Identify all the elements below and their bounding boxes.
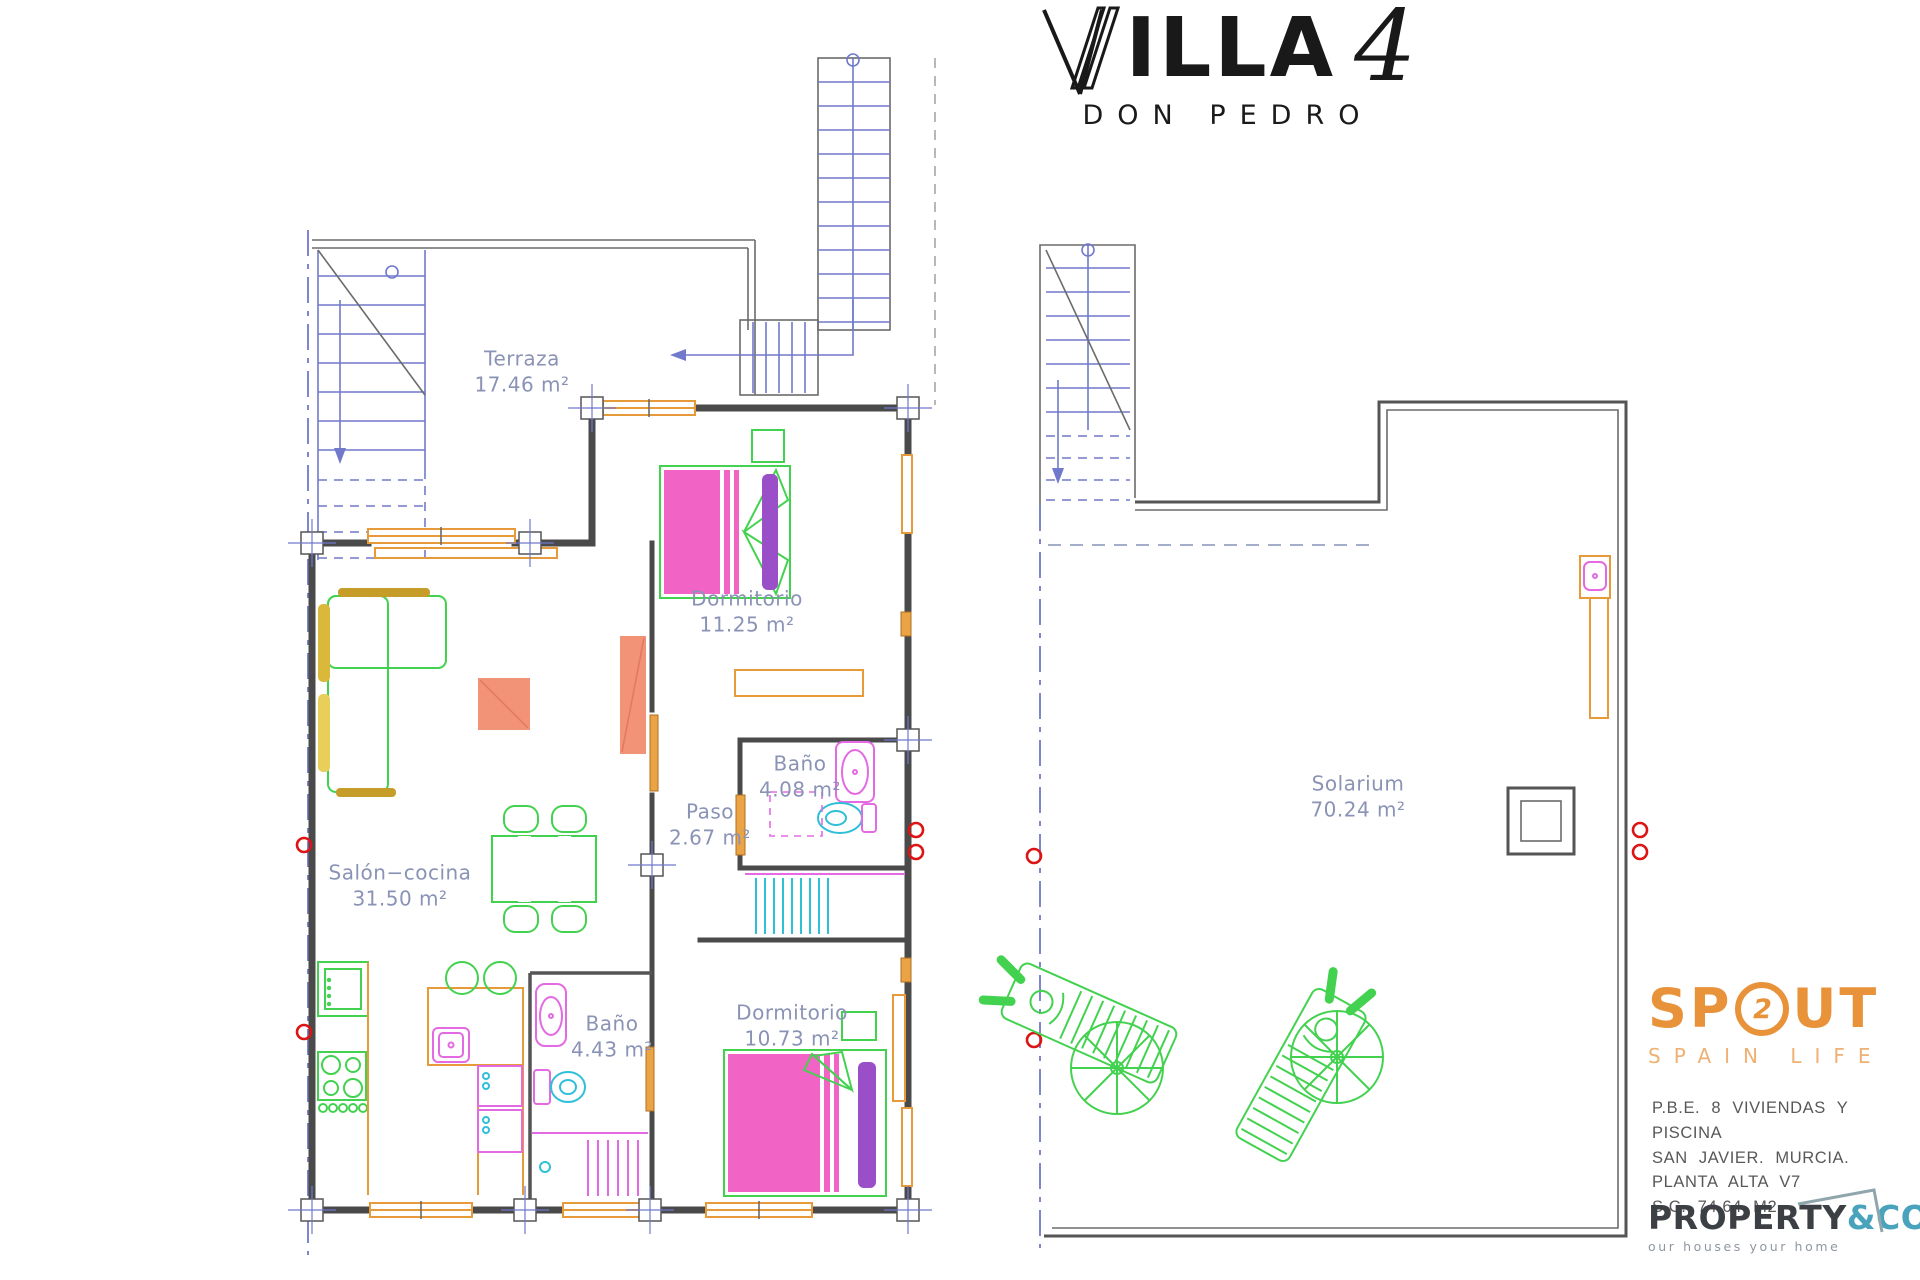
washer-icons — [478, 1066, 522, 1152]
room-name: Solarium — [1310, 771, 1405, 797]
room-area: 31.50 m² — [329, 886, 472, 912]
kitchen-icons — [318, 962, 523, 1195]
right-plan — [980, 244, 1647, 1248]
room-area: 10.73 m² — [736, 1026, 848, 1052]
terrace-stairs-icon — [318, 250, 425, 560]
parasol-icon — [1071, 1022, 1163, 1114]
spout-suffix: UT — [1792, 982, 1879, 1036]
project-info-line: SAN JAVIER. MURCIA. — [1652, 1146, 1920, 1171]
villa-v-glyph — [1040, 6, 1126, 98]
title-text: ILLA — [1126, 8, 1336, 90]
stool-icon — [484, 962, 516, 994]
title-block: ILLA 4 DON PEDRO — [1028, 6, 1428, 131]
propertyco-tagline: our houses your home — [1648, 1239, 1908, 1254]
room-label-dormitorio2: Dormitorio 10.73 m² — [736, 1000, 848, 1053]
room-area: 11.25 m² — [691, 612, 803, 638]
bed-icon — [660, 430, 790, 598]
fridge-icon — [318, 962, 368, 1016]
sun-lounger-icon — [1234, 968, 1379, 1164]
room-label-terraza: Terraza 17.46 m² — [474, 346, 569, 399]
title-subtitle: DON PEDRO — [1028, 100, 1428, 131]
spout-circle-icon: 2 — [1735, 982, 1789, 1036]
parasol-icon — [1291, 1011, 1383, 1103]
propertyco-roof-icon — [1796, 1188, 1900, 1236]
toilet-icon — [818, 803, 876, 833]
plan-drawing — [0, 0, 1920, 1280]
room-label-solarium: Solarium 70.24 m² — [1310, 771, 1405, 824]
dresser-icon — [893, 995, 905, 1101]
dining-set-icon — [492, 806, 596, 932]
bedroom1-window-icon — [603, 399, 695, 417]
coffee-table-icon — [478, 678, 530, 730]
room-area: 4.43 m² — [571, 1037, 653, 1063]
room-name: Salón−cocina — [329, 860, 472, 886]
room-name: Terraza — [474, 346, 569, 372]
room-name: Baño — [571, 1011, 653, 1037]
room-area: 4.08 m² — [759, 777, 841, 803]
door-icons — [646, 715, 745, 1111]
counter-icon — [368, 962, 523, 1195]
washbasin-icon — [836, 742, 874, 802]
room-label-bano1: Baño 4.08 m² — [759, 751, 841, 804]
stool-icon — [446, 962, 478, 994]
sofa-icon — [318, 588, 446, 797]
room-label-salon: Salón−cocina 31.50 m² — [329, 860, 472, 913]
spout-prefix: SP — [1648, 982, 1732, 1036]
stove-icon — [318, 1052, 367, 1112]
room-label-paso: Paso 2.67 m² — [669, 799, 751, 852]
toilet-icon — [534, 1070, 585, 1104]
room-name: Dormitorio — [736, 1000, 848, 1026]
radiator-icon — [756, 878, 828, 934]
upper-stairs-icon — [670, 54, 935, 405]
shower-icon — [532, 1133, 648, 1196]
propertyco-logo: PROPERTY &CO our houses your home — [1648, 1198, 1908, 1254]
room-name: Baño — [759, 751, 841, 777]
chimney-icon — [1508, 788, 1574, 854]
washbasin-icon — [536, 984, 566, 1046]
spout-tagline: SPAIN LIFE — [1648, 1044, 1908, 1068]
project-info-line: P.B.E. 8 VIVIENDAS Y PISCINA — [1652, 1096, 1920, 1146]
dresser-icon — [735, 670, 863, 696]
room-label-bano2: Baño 4.43 m² — [571, 1011, 653, 1064]
rooftop-sink-icon — [1580, 556, 1610, 718]
spout-icon-glyph: 2 — [1753, 994, 1772, 1025]
solarium-stairs-icon — [1040, 244, 1135, 505]
room-area: 17.46 m² — [474, 372, 569, 398]
title-number: 4 — [1354, 6, 1416, 89]
kitchen-sink-icon — [433, 1028, 469, 1062]
tv-unit-icon — [620, 636, 646, 754]
room-label-dormitorio1: Dormitorio 11.25 m² — [691, 586, 803, 639]
room-name: Dormitorio — [691, 586, 803, 612]
interior-walls — [530, 543, 908, 1210]
room-area: 2.67 m² — [669, 825, 751, 851]
sun-lounger-icon — [980, 952, 1179, 1084]
bottom-window-icons — [370, 1201, 812, 1219]
nightstand-icon — [752, 430, 784, 462]
floorplan-sheet: Terraza 17.46 m² Dormitorio 11.25 m² Bañ… — [0, 0, 1920, 1280]
spout-logo: SP 2 UT SPAIN LIFE — [1648, 982, 1908, 1068]
room-area: 70.24 m² — [1310, 797, 1405, 823]
left-plan — [288, 54, 935, 1255]
room-name: Paso — [669, 799, 751, 825]
